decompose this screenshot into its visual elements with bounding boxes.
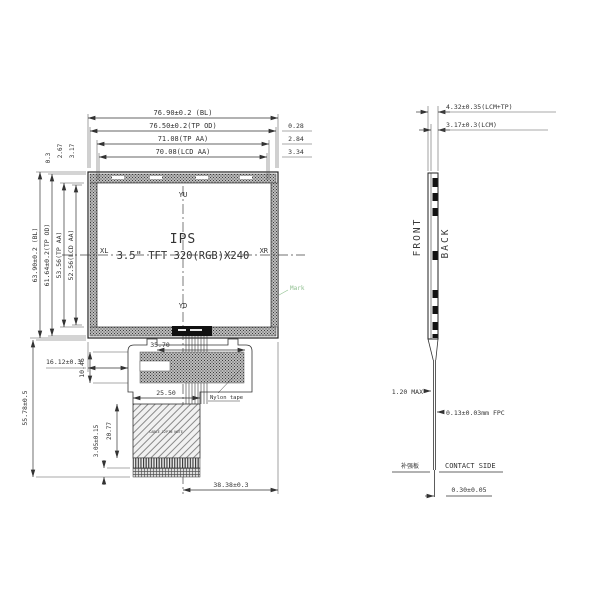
contact-side-label: CONTACT SIDE [445, 462, 496, 470]
panel-spec-text: 3.5" TFT 320(RGB)X240 [117, 250, 250, 262]
fpc-notch [140, 361, 170, 371]
dim-bottom-thickness: 0.30±0.05 [451, 486, 486, 494]
dim-width-bl: 76.90±0.2 (BL) [153, 109, 212, 117]
dim-thickness-lcm: 3.17±0.3(LCM) [446, 121, 497, 129]
axis-label-xr: XR [260, 247, 269, 255]
dim-width-tp-od: 76.50±0.2(TP OD) [149, 122, 216, 130]
dim-comb: 3.05±0.15 [93, 424, 100, 457]
lcd-module-drawing: YU YD XL XR IPS 3.5" TFT 320(RGB)X240 Ma… [0, 0, 600, 600]
fpc-section: Nylon tape CABLE 12PIN NOTE 35.70 10.46 … [21, 326, 278, 494]
axis-label-xl: XL [100, 247, 108, 255]
stiffener-label: 补强板 [401, 462, 419, 470]
dim-bottom-offset: 38.38±0.3 [213, 481, 248, 489]
dim-fpc-offset: 16.12±0.3 [46, 358, 81, 366]
dim-width-lcd-aa: 70.08(LCD AA) [156, 148, 211, 156]
dim-edge-offset-1: 0.28 [288, 122, 304, 130]
contact-fingers-grid [133, 468, 200, 477]
back-side-label: BACK [440, 228, 451, 259]
dim-width-tp-aa: 71.08(TP AA) [158, 135, 209, 143]
front-view: YU YD XL XR IPS 3.5" TFT 320(RGB)X240 Ma… [21, 109, 312, 494]
mark-label: Mark [290, 285, 305, 292]
connector-text-speck [178, 329, 186, 331]
fpc-taper [428, 339, 438, 360]
dim-total-height: 55.78±0.5 [21, 390, 29, 425]
connector-text-speck [190, 329, 202, 331]
stiffener-note: CABLE 12PIN NOTE [149, 430, 183, 434]
contact-fingers [133, 458, 200, 468]
dim-height-tp-aa: 53.56(TP AA) [55, 232, 63, 279]
dim-edge-offset-2: 2.84 [288, 135, 304, 143]
dim-height-lcd-aa: 52.56(LCD AA) [67, 230, 75, 281]
dim-bend: 1.20 MAX [392, 388, 423, 396]
drawing-canvas: YU YD XL XR IPS 3.5" TFT 320(RGB)X240 Ma… [0, 0, 600, 600]
dim-fpc-thickness: 0.13±0.03mm FPC [446, 409, 505, 417]
dim-stiffener-height: 20.77 [106, 422, 113, 440]
tape-label: Nylon tape [210, 395, 243, 401]
dim-topgap-2: 2.67 [57, 143, 64, 158]
panel-type-text: IPS [170, 232, 196, 247]
axis-label-yd: YD [179, 302, 187, 310]
axis-label-yu: YU [179, 191, 187, 199]
dim-stiffener-width: 25.50 [156, 389, 176, 397]
side-view: 4.32±0.35(LCM+TP) 3.17±0.3(LCM) FRONT BA… [392, 103, 556, 497]
dim-thickness-total: 4.32±0.35(LCM+TP) [446, 103, 513, 111]
dim-topgap-1: 0.3 [45, 152, 52, 163]
front-side-label: FRONT [412, 218, 423, 257]
fpc-tail-lines [433, 360, 435, 470]
dim-fpc-width: 35.70 [150, 341, 170, 349]
dim-height-tp-od: 61.64±0.2(TP OD) [43, 224, 51, 287]
side-extension-lines [428, 106, 438, 171]
dim-topgap-3: 3.17 [69, 143, 76, 158]
dim-edge-offset-3: 3.34 [288, 148, 304, 156]
dim-height-bl: 63.90±0.2 (BL) [31, 228, 39, 283]
mark-leader [279, 290, 288, 295]
